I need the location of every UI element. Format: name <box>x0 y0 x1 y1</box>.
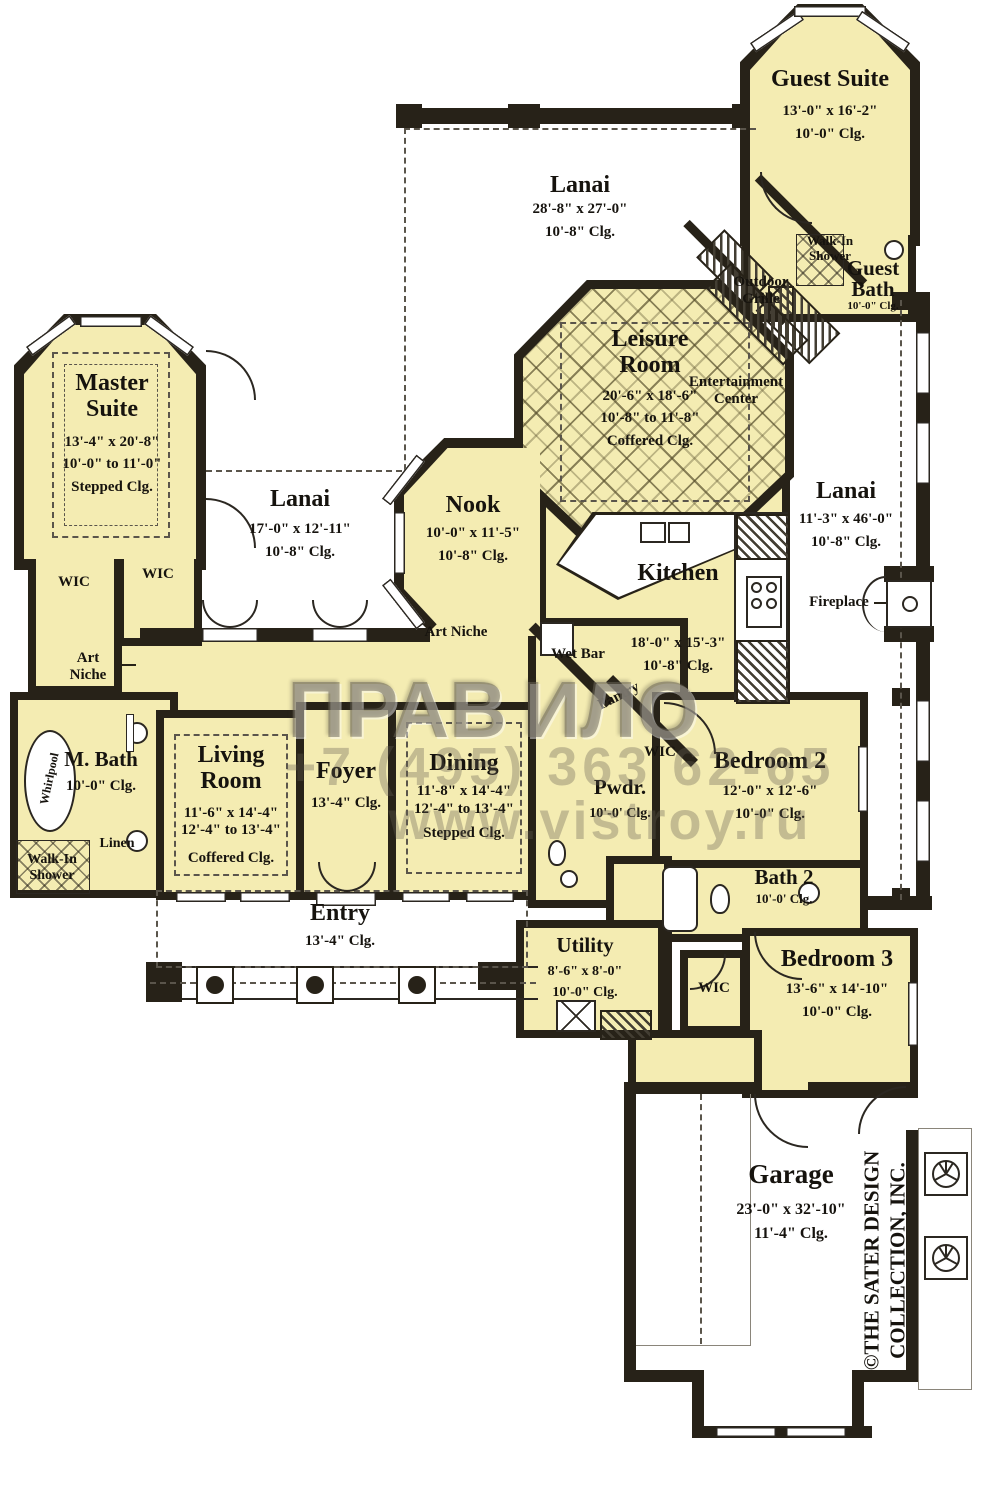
door-arc <box>754 1094 808 1148</box>
outdoor-grille-label: Outdoor Grille <box>718 274 804 309</box>
room-label-lanai-right: Lanai 11'-3" x 46'-0" 10'-8" Clg. <box>788 478 904 574</box>
room-label-lanai-left: Lanai 17'-0" x 12'-11" 10'-8" Clg. <box>225 486 375 582</box>
room-label-master: Master Suite 13'-4" x 20'-8" 10'-0" to 1… <box>38 370 186 522</box>
window <box>176 892 226 902</box>
toilet-icon <box>548 840 566 866</box>
column <box>396 104 422 128</box>
room-label-guest-suite: Guest Suite 13'-0" x 16'-2" 10'-0" Clg. <box>752 66 908 176</box>
leader-line <box>118 664 136 666</box>
refrigerator <box>736 514 790 560</box>
art-niche-label: Art Niche <box>418 624 494 641</box>
window <box>466 892 514 902</box>
window <box>402 892 450 902</box>
fireplace-block <box>884 626 934 642</box>
room-name: Dining <box>429 750 498 776</box>
window <box>916 800 930 862</box>
room-dims: 17'-0" x 12'-11" <box>249 518 351 541</box>
rear-wall <box>140 628 430 642</box>
burner-icon <box>766 598 777 609</box>
room-dims: 12'-0" x 12'-6" <box>723 780 818 803</box>
room-name: Master Suite <box>57 370 167 423</box>
room-name: Guest Bath <box>832 258 914 300</box>
room-dims: 11'-8" x 14'-4" <box>417 782 511 800</box>
room-name: Entry <box>310 900 370 926</box>
window <box>394 512 405 574</box>
room-name: Foyer <box>316 758 376 784</box>
garage-wall-top <box>624 1082 756 1094</box>
wic-label: WIC <box>634 744 686 761</box>
floor-plan: Lanai 28'-8" x 27'-0" 10'-8" Clg. Guest … <box>0 0 1000 1495</box>
room-clg2: Coffered Clg. <box>188 847 274 870</box>
fan-icon <box>930 1242 962 1274</box>
room-clg: 11'-4" Clg. <box>754 1222 828 1246</box>
wall <box>396 108 764 124</box>
fireplace-flue-icon <box>902 596 918 612</box>
door-arc <box>202 600 230 628</box>
column-core <box>306 976 324 994</box>
room-name: Lanai <box>550 172 610 198</box>
wic-label: WIC <box>38 574 110 591</box>
room-dims: 13'-4" x 20'-8" <box>65 431 160 454</box>
burner-icon <box>766 582 777 593</box>
room-label-living: Living Room 11'-6" x 14'-4" 12'-4" to 13… <box>160 742 302 888</box>
room-clg1: 10'-0" to 11'-0" <box>62 453 161 476</box>
room-clg: 10'-0' Clg. <box>589 803 650 824</box>
linen-label: Linen <box>88 836 146 852</box>
room-dims: 8'-6" x 8'-0" <box>548 961 623 982</box>
room-clg2: Stepped Clg. <box>71 476 153 499</box>
room-dims: 18'-0" x 15'-3" <box>631 632 726 655</box>
window <box>716 1427 776 1437</box>
room-clg: 13'-4" Clg. <box>311 792 381 815</box>
double-sink-icon <box>668 522 690 543</box>
wic-label: WIC <box>686 980 742 997</box>
room-dims: 10'-0" x 11'-5" <box>426 522 520 545</box>
room-dims: 13'-0" x 16'-2" <box>783 100 878 123</box>
room-dims: 28'-8" x 27'-0" <box>533 198 628 221</box>
room-clg: 10'-0" Clg. <box>552 982 617 1003</box>
room-name: Garage <box>748 1160 833 1190</box>
room-label-entry: Entry 13'-4" Clg. <box>278 900 402 960</box>
room-clg: 10'-0" Clg. <box>735 803 805 826</box>
garage-wall-right <box>906 1082 918 1092</box>
room-name: M. Bath <box>64 748 138 771</box>
room-label-guest-bath: Guest Bath 10'-0" Clg. <box>832 258 914 316</box>
room-name: Utility <box>556 934 613 957</box>
room-clg: 10'-0" Clg. <box>66 775 136 798</box>
room-dims: 11'-3" x 46'-0" <box>799 508 893 531</box>
garage-wall-left <box>624 1082 636 1378</box>
window <box>794 6 866 17</box>
room-clg: 10'-0" Clg. <box>795 123 865 146</box>
room-name: Kitchen <box>637 560 718 586</box>
room-label-nook: Nook 10'-0" x 11'-5" 10'-8" Clg. <box>407 492 539 578</box>
window <box>786 1427 846 1437</box>
french-door <box>312 628 368 642</box>
column-core <box>206 976 224 994</box>
room-label-bath2: Bath 2 10'-0' Clg. <box>734 866 834 918</box>
window <box>916 422 930 484</box>
lanai-screen-line <box>206 470 402 474</box>
porch-column <box>398 966 436 1004</box>
room-name: Pwdr. <box>594 776 646 799</box>
toilet-icon <box>710 884 730 914</box>
room-clg: 10'-0" Clg. <box>847 300 898 313</box>
door-arc <box>312 600 340 628</box>
sink-icon <box>560 870 578 888</box>
room-label-kitchen: Kitchen 18'-0" x 15'-3" 10'-8" Clg. <box>598 560 758 678</box>
room-label-foyer: Foyer 13'-4" Clg. <box>300 758 392 826</box>
room-clg1: 10'-8" to 11'-8" <box>600 407 699 430</box>
window <box>916 700 930 762</box>
room-clg2: Coffered Clg. <box>607 430 693 453</box>
copyright-line1: ©THE SATER DESIGN <box>860 1131 885 1391</box>
room-name: Bedroom 2 <box>714 748 826 774</box>
room-label-utility: Utility 8'-6" x 8'-0" 10'-0" Clg. <box>522 934 648 1014</box>
fireplace-label: Fireplace <box>800 594 878 611</box>
porch-column <box>296 966 334 1004</box>
room-label-garage: Garage 23'-0" x 32'-10" 11'-4" Clg. <box>698 1160 884 1262</box>
window <box>858 746 868 812</box>
wet-bar-label: Wet Bar <box>544 646 612 663</box>
room-clg: 10'-0' Clg. <box>755 889 812 909</box>
room-clg1: 12'-4" to 13'-4" <box>181 822 281 839</box>
fan-icon <box>930 1158 962 1190</box>
wic-label: WIC <box>126 566 190 583</box>
french-door <box>202 628 258 642</box>
room-label-lanai-top: Lanai 28'-8" x 27'-0" 10'-8" Clg. <box>480 172 680 272</box>
garage-bay-line <box>636 1345 751 1346</box>
room-label-dining: Dining 11'-8" x 14'-4" 12'-4" to 13'-4" … <box>404 750 524 868</box>
room-dims: 13'-6" x 14'-10" <box>786 978 888 1001</box>
double-sink-icon <box>640 522 666 543</box>
room-dims: 11'-6" x 14'-4" <box>184 805 278 822</box>
room-dims: 23'-0" x 32'-10" <box>736 1198 845 1222</box>
porch-column <box>196 966 234 1004</box>
room-name: Nook <box>446 492 501 518</box>
wall <box>860 896 932 910</box>
room-name: Bath 2 <box>755 866 814 889</box>
art-niche-label: Art Niche <box>58 650 118 685</box>
copyright-line2: COLLECTION, INC. <box>886 1131 911 1391</box>
entertainment-center-label: Entertainment Center <box>684 374 788 409</box>
room-clg: 10'-8" Clg. <box>438 545 508 568</box>
room-name: Living Room <box>181 742 281 795</box>
room-clg: 13'-4" Clg. <box>305 930 375 953</box>
fan-unit <box>924 1236 968 1280</box>
room-clg: 10'-8" Clg. <box>545 221 615 244</box>
fan-unit <box>924 1152 968 1196</box>
room-name: Lanai <box>816 478 876 504</box>
column <box>508 104 540 128</box>
door-arc <box>230 600 258 628</box>
room-clg: 10'-0" Clg. <box>802 1001 872 1024</box>
room-clg: 10'-8" Clg. <box>265 541 335 564</box>
room-name: Bedroom 3 <box>781 946 893 972</box>
room-clg: 10'-8" Clg. <box>643 655 713 678</box>
room-clg2: Stepped Clg. <box>423 822 505 845</box>
room-clg: 10'-8" Clg. <box>811 531 881 554</box>
room-name: Leisure Room <box>590 326 710 379</box>
bathtub <box>662 866 698 932</box>
room-label-pwdr: Pwdr. 10'-0' Clg. <box>570 776 670 834</box>
room-label-bedroom3: Bedroom 3 13'-6" x 14'-10" 10'-0" Clg. <box>762 946 912 1040</box>
dryer-icon <box>600 1010 652 1040</box>
room-name: Lanai <box>270 486 330 512</box>
door-arc <box>206 350 256 400</box>
room-clg1: 12'-4" to 13'-4" <box>414 800 514 818</box>
room-label-bedroom2: Bedroom 2 12'-0" x 12'-6" 10'-0" Clg. <box>688 748 852 840</box>
door-arc <box>340 600 368 628</box>
room-name: Guest Suite <box>771 66 889 92</box>
column-core <box>408 976 426 994</box>
walk-in-shower-label: Walk-In Shower <box>12 852 92 884</box>
window <box>916 332 930 394</box>
window <box>80 316 142 327</box>
